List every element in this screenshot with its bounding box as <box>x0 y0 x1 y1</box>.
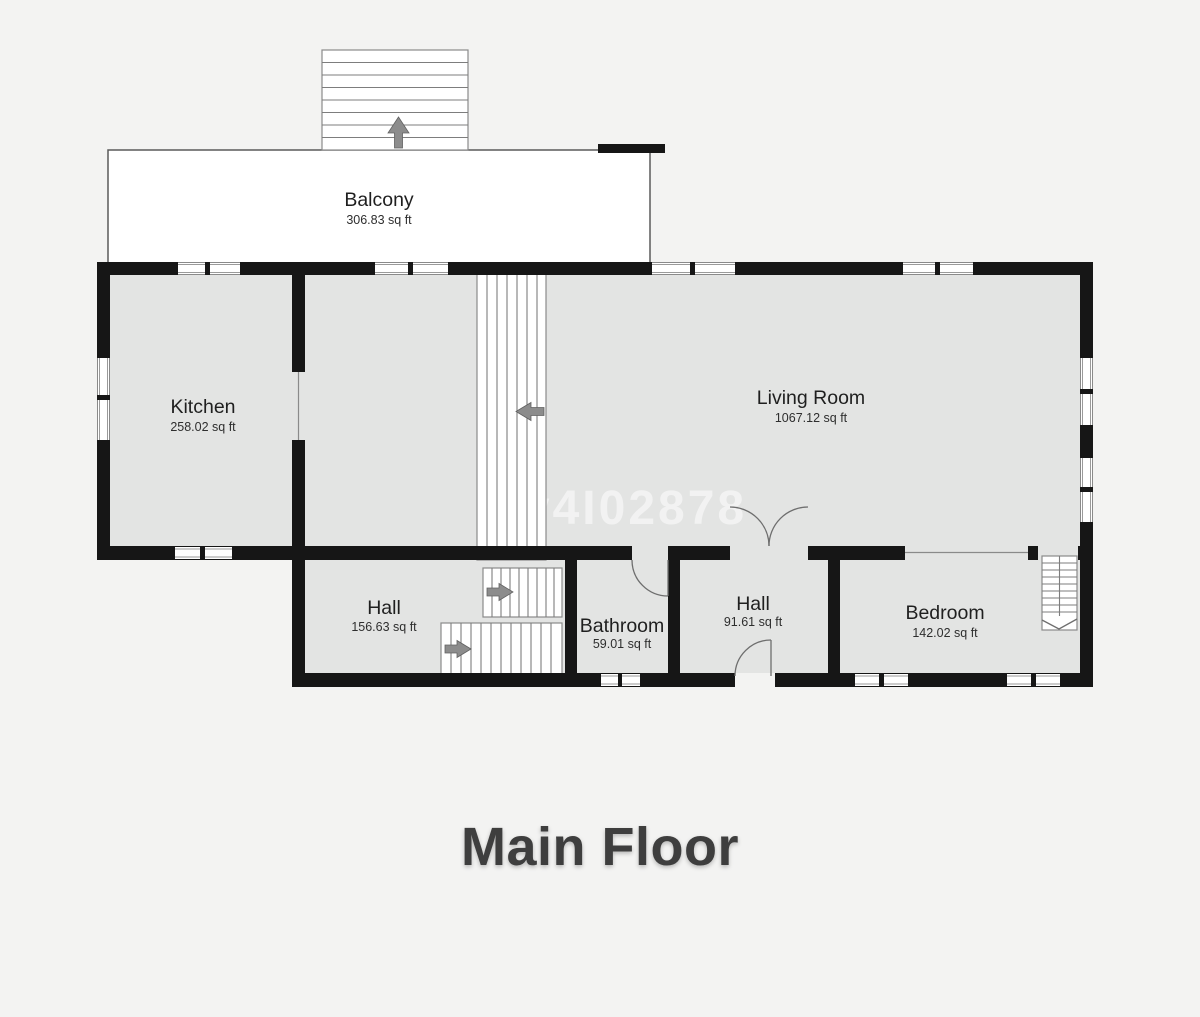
window-north-2 <box>375 263 448 275</box>
window-east-2 <box>1081 458 1093 522</box>
window-north-1 <box>178 263 240 275</box>
room-name: Living Room <box>757 387 865 409</box>
bathroom-west-wall <box>565 546 577 687</box>
window-east-1 <box>1081 358 1093 425</box>
window-kitchen-south <box>175 547 232 559</box>
room-area: 142.02 sq ft <box>912 626 978 640</box>
room-label-kitchen: Kitchen 258.02 sq ft <box>170 396 236 434</box>
room-name: Bedroom <box>905 602 984 624</box>
room-name: Kitchen <box>170 396 235 418</box>
room-area: 156.63 sq ft <box>351 620 417 634</box>
window-south-1 <box>601 674 640 686</box>
room-name: Balcony <box>344 189 414 211</box>
room-name: Hall <box>736 593 770 615</box>
bedroom-west-wall <box>828 546 840 687</box>
room-area: 59.01 sq ft <box>593 637 652 651</box>
watermark-text: v4I02878 <box>523 482 747 535</box>
window-west <box>98 358 110 440</box>
room-label-balcony: Balcony 306.83 sq ft <box>344 189 414 227</box>
floor-title: Main Floor <box>0 816 1200 878</box>
balcony-wall-stub <box>598 144 665 153</box>
room-name: Bathroom <box>580 615 665 637</box>
double-door-opening <box>730 546 808 560</box>
floorplan-drawing: v4I02878 <box>0 0 1200 760</box>
room-name: Hall <box>367 597 401 619</box>
window-north-4 <box>903 263 973 275</box>
room-label-bedroom: Bedroom 142.02 sq ft <box>905 602 984 640</box>
window-south-3 <box>1007 674 1060 686</box>
room-area: 1067.12 sq ft <box>775 411 848 425</box>
bathroom-door-opening <box>632 546 668 560</box>
room-area: 258.02 sq ft <box>170 420 236 434</box>
room-area: 91.61 sq ft <box>724 615 783 629</box>
window-south-2 <box>855 674 908 686</box>
kitchen-east-wall <box>292 262 305 687</box>
window-north-3 <box>652 263 735 275</box>
south-wall <box>292 673 1093 687</box>
basement-staircase <box>1042 556 1077 630</box>
central-staircase <box>477 272 546 560</box>
hall-exterior-door-opening <box>735 673 775 687</box>
floorplan-page: v4I02878 <box>0 0 1200 1017</box>
bathroom-east-wall <box>668 546 680 687</box>
room-area: 306.83 sq ft <box>346 213 412 227</box>
